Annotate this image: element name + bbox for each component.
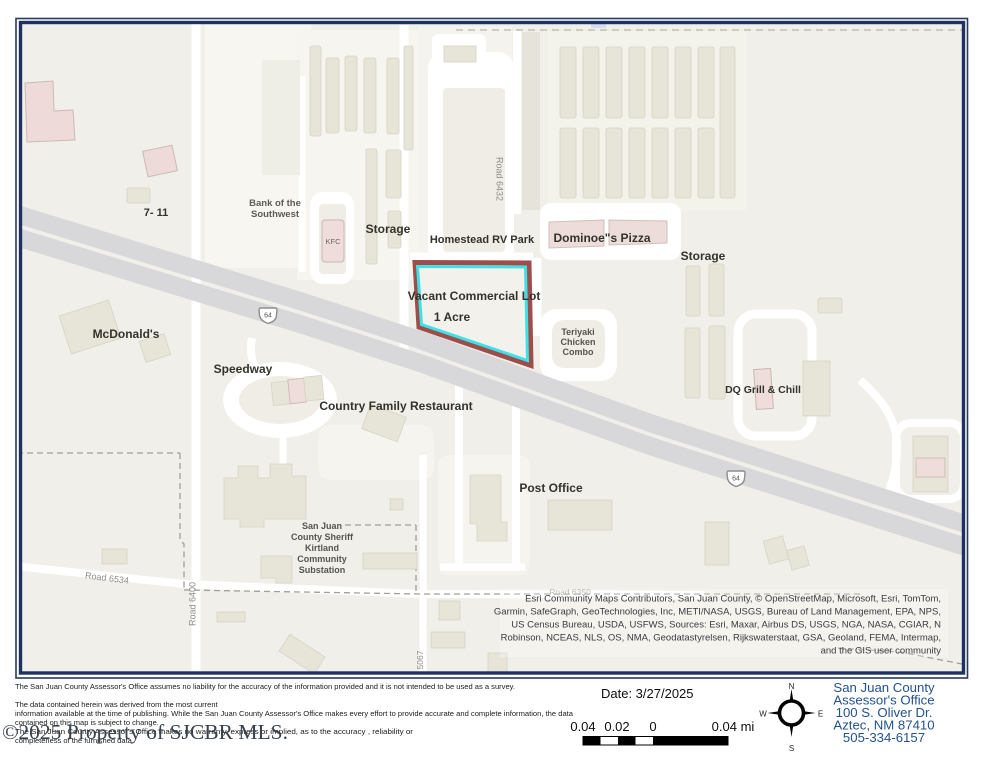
svg-text:7- 11: 7- 11 (144, 207, 168, 219)
svg-text:505-334-6157: 505-334-6157 (843, 730, 925, 745)
svg-text:Southwest: Southwest (251, 209, 300, 220)
svg-text:Garmin, SafeGraph, GeoTechnolo: Garmin, SafeGraph, GeoTechnologies, Inc,… (494, 607, 941, 618)
svg-text:San Juan: San Juan (302, 521, 342, 531)
svg-text:The San Juan County Assessor's: The San Juan County Assessor's Office as… (15, 682, 515, 691)
svg-text:Robinson, NCEAS, NLS, OS, NMA,: Robinson, NCEAS, NLS, OS, NMA, Geodatast… (501, 633, 941, 644)
svg-text:Teriyaki: Teriyaki (561, 327, 594, 337)
svg-text:64: 64 (732, 476, 740, 483)
svg-text:N: N (789, 682, 795, 691)
svg-text:information available at the t: information available at the time of pub… (15, 709, 574, 718)
svg-text:Dominoe"s Pizza: Dominoe"s Pizza (553, 231, 650, 245)
svg-text:S: S (789, 744, 794, 753)
svg-text:Bank of the: Bank of the (249, 198, 301, 209)
svg-text:0: 0 (649, 719, 656, 734)
svg-text:Kirtland: Kirtland (305, 543, 339, 553)
svg-text:0.04: 0.04 (570, 719, 595, 734)
svg-text:Storage: Storage (681, 249, 726, 263)
svg-text:Community: Community (297, 554, 347, 564)
svg-text:Storage: Storage (366, 222, 411, 236)
svg-text:Homestead RV Park: Homestead RV Park (430, 234, 535, 246)
svg-text:64: 64 (264, 313, 272, 320)
svg-text:McDonald's: McDonald's (93, 327, 160, 341)
svg-text:Road 6432: Road 6432 (495, 157, 505, 201)
svg-text:Vacant Commercial Lot: Vacant Commercial Lot (408, 289, 541, 303)
svg-text:Speedway: Speedway (214, 362, 273, 376)
svg-text:0.04 mi: 0.04 mi (712, 719, 755, 734)
svg-text:W: W (759, 710, 767, 719)
svg-text:5067: 5067 (415, 650, 425, 669)
svg-text:Road 6400: Road 6400 (188, 582, 198, 626)
svg-text:Date: 3/27/2025: Date: 3/27/2025 (601, 686, 694, 701)
svg-text:E: E (818, 710, 823, 719)
svg-text:US Census Bureau, USDA, USFWS,: US Census Bureau, USDA, USFWS, Sources: … (511, 620, 941, 631)
svg-text:KFC: KFC (326, 237, 342, 246)
svg-text:Substation: Substation (299, 565, 346, 575)
svg-text:Combo: Combo (563, 347, 594, 357)
svg-text:Chicken: Chicken (560, 337, 595, 347)
svg-text:Country Family Restaurant: Country Family Restaurant (319, 399, 472, 413)
svg-text:DQ Grill & Chill: DQ Grill & Chill (725, 384, 801, 396)
svg-text:Esri Community Maps Contributo: Esri Community Maps Contributors, San Ju… (525, 594, 941, 605)
svg-text:Post Office: Post Office (519, 481, 583, 495)
svg-text:0.02: 0.02 (604, 719, 629, 734)
svg-text:The data contained herein was: The data contained herein was derived fr… (15, 700, 219, 709)
svg-text:1 Acre: 1 Acre (434, 310, 471, 324)
svg-text:and the GIS user community: and the GIS user community (821, 646, 942, 657)
svg-text:©2025 Property of SJCBR MLS.: ©2025 Property of SJCBR MLS. (2, 720, 288, 744)
svg-text:County Sheriff: County Sheriff (291, 532, 354, 542)
